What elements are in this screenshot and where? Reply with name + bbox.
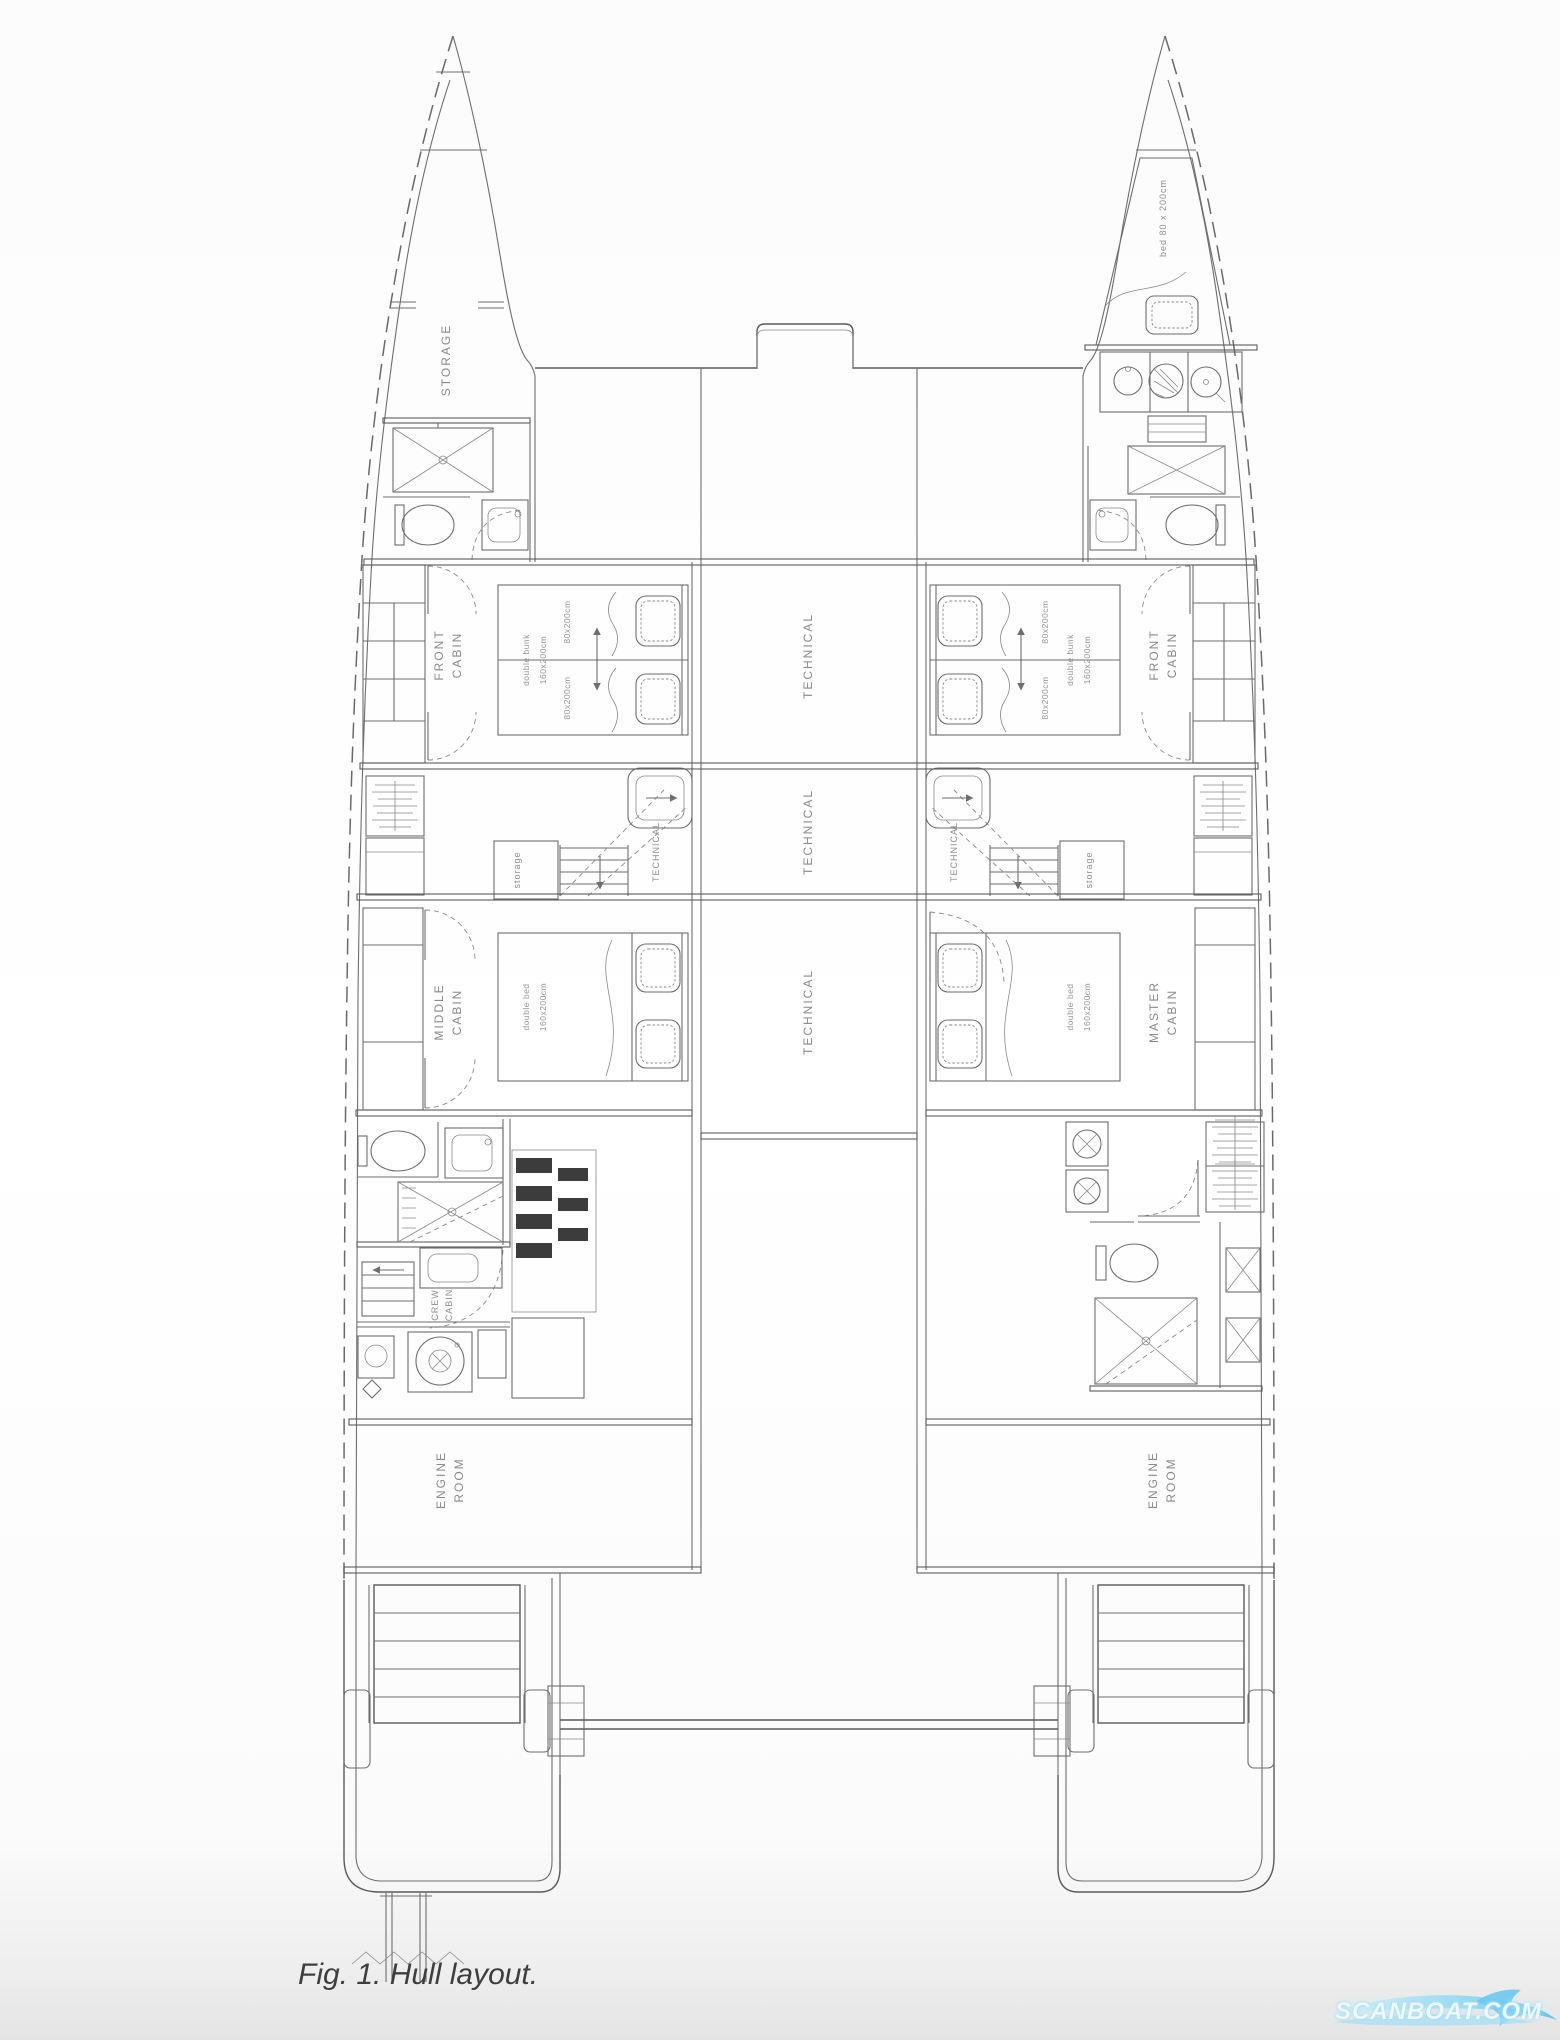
stairs-left: [560, 790, 688, 896]
stove-burner-icon: [1149, 364, 1183, 398]
shower-right-fore: [1128, 446, 1225, 494]
master-cabin-label: CABIN: [1165, 989, 1179, 1036]
front-cabin-label-right: CABIN: [1165, 632, 1179, 679]
double-bunk-label: double bunk: [521, 634, 531, 686]
left-battery-bank: [512, 1150, 596, 1398]
bulkhead: [360, 763, 1258, 769]
bulkhead: [701, 1133, 917, 1139]
double-bunk-size-label: 160x200cm: [1082, 636, 1092, 684]
bed-size-label: 80x200cm: [1040, 676, 1050, 719]
shower-right-aft: [1095, 1298, 1197, 1384]
technical-label-hatch-left: TECHNICAL: [651, 822, 661, 882]
bulkhead: [349, 1419, 692, 1425]
shower-left-fore: [393, 428, 493, 492]
right-galley: [1100, 352, 1242, 442]
engine-room-label-left: ENGINE: [434, 1451, 448, 1509]
right-front-cabin: 80x200cm 80x200cm double bunk 160x200cm …: [930, 565, 1255, 763]
aft-crossbeam: [560, 1720, 1058, 1729]
storage-small-label: storage: [1084, 851, 1094, 888]
bulkhead: [357, 894, 1261, 900]
left-middle-cabin: double bed 160x200cm MIDDLE CABIN: [363, 908, 688, 1110]
sink-left-fore: [482, 500, 528, 550]
bulkhead: [917, 1567, 1274, 1573]
technical-hatch-left: [628, 768, 692, 828]
front-cabin-label-left: FRONT: [432, 629, 446, 680]
double-bunk-size-label: 160x200cm: [538, 636, 548, 684]
technical-label-hatch-right: TECHNICAL: [949, 822, 959, 882]
shower-left-aft: [398, 1182, 503, 1242]
bridgedeck: TECHNICAL TECHNICAL TECHNICAL: [344, 324, 1274, 1775]
double-bed-label: double bed: [521, 983, 531, 1030]
bulkhead: [364, 559, 1254, 565]
right-engine-room: ENGINE ROOM: [1146, 1451, 1178, 1509]
right-hull: bed 80 x 200cm: [926, 36, 1274, 1892]
sink-right-fore: [1090, 500, 1136, 550]
right-fore-bathroom: [1088, 446, 1240, 562]
bulkhead: [926, 1419, 1270, 1425]
technical-hatch-right: [926, 768, 990, 828]
double-bed-size-label: 160x200cm: [1082, 983, 1092, 1031]
engine-room-label-right: ENGINE: [1146, 1451, 1160, 1509]
double-bunk-label: double bunk: [1065, 634, 1075, 686]
right-aft-utility: [1066, 1116, 1264, 1222]
left-transom: [344, 1585, 584, 1982]
engine-room-label-left: ROOM: [452, 1457, 466, 1502]
left-fore-bathroom: [383, 423, 530, 562]
toilet-icon: [358, 1131, 425, 1171]
watermark-text: SCANBOAT.COM: [1335, 1998, 1542, 2026]
wardrobe-right: [1206, 1116, 1264, 1212]
washing-machine-icon: [408, 1332, 472, 1392]
sink-left-aft: [445, 1128, 503, 1178]
toilet-icon: [1096, 1244, 1158, 1282]
front-cabin-label-right: FRONT: [1147, 629, 1161, 680]
technical-label-center-3: TECHNICAL: [801, 969, 815, 1055]
page: STORAGE: [0, 0, 1560, 2040]
right-transom: [1034, 1585, 1274, 1768]
bulkhead: [344, 1567, 701, 1573]
scanboat-watermark: SCANBOAT.COM: [1325, 1982, 1560, 2040]
middle-cabin-label: CABIN: [450, 989, 464, 1036]
left-hull: STORAGE: [344, 36, 692, 1982]
double-bed-label: double bed: [1065, 983, 1075, 1030]
bed-size-label: 80x200cm: [562, 600, 572, 643]
right-aft-bathroom: [1090, 1222, 1262, 1391]
left-engine-room: ENGINE ROOM: [434, 1451, 466, 1509]
right-master-cabin: double bed 160x200cm MASTER CABIN: [930, 908, 1255, 1110]
hanging-locker-icon: [1200, 781, 1246, 831]
hanging-locker-icon: [1212, 1116, 1258, 1166]
right-bow-cabin: bed 80 x 200cm: [1085, 150, 1257, 350]
left-front-cabin: 80x200cm 80x200cm double bunk 160x200cm …: [363, 565, 688, 763]
technical-label-center-2: TECHNICAL: [801, 789, 815, 875]
double-bed-size-label: 160x200cm: [538, 983, 548, 1031]
hanging-locker-icon: [372, 781, 418, 831]
right-landing: storage TECHNICAL: [926, 768, 1252, 899]
engine-room-label-right: ROOM: [1164, 1457, 1178, 1502]
bulkhead: [926, 1110, 1262, 1116]
right-hull-outline: [1058, 36, 1274, 1892]
crew-cabin-label: CREW: [430, 1289, 440, 1321]
hanging-locker-icon: [1212, 1160, 1258, 1210]
front-cabin-label-left: CABIN: [450, 632, 464, 679]
left-laundry: [357, 1322, 510, 1398]
middle-cabin-label: MIDDLE: [432, 983, 446, 1040]
left-bow-storage: STORAGE: [383, 72, 530, 423]
master-cabin-label: MASTER: [1147, 981, 1161, 1043]
bed-size-label: 80x200cm: [562, 676, 572, 719]
stairs-crew: [362, 1262, 414, 1316]
left-landing: storage TECHNICAL: [366, 768, 692, 899]
bulkhead: [356, 1110, 692, 1116]
toilet-icon: [1166, 505, 1225, 545]
storage-small-label: storage: [512, 851, 522, 888]
left-hull-outline: [344, 36, 560, 1892]
left-crew-cabin: CREW CABIN: [362, 1248, 503, 1328]
bed-size-label: 80x200cm: [1040, 600, 1050, 643]
left-aft-bathroom: [357, 1119, 510, 1247]
figure-caption: Fig. 1. Hull layout.: [298, 1958, 538, 1992]
crew-cabin-label: CABIN: [444, 1289, 454, 1322]
hull-layout-drawing: STORAGE: [0, 0, 1560, 2040]
toilet-icon: [395, 505, 454, 545]
bow-bed-label: bed 80 x 200cm: [1158, 179, 1168, 257]
technical-label-center-1: TECHNICAL: [801, 613, 815, 699]
storage-label: STORAGE: [439, 324, 453, 396]
